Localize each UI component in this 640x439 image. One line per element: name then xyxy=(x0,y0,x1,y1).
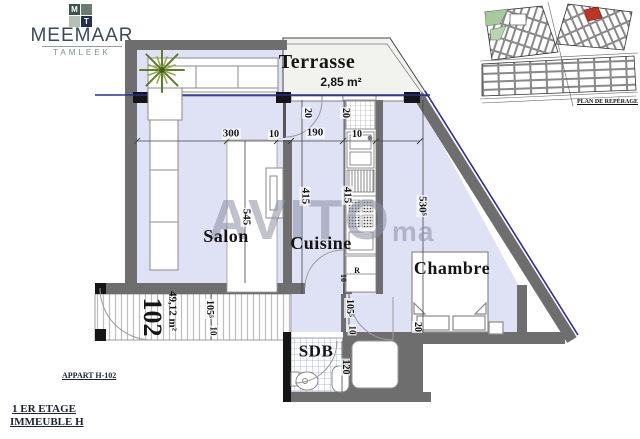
room-label-cuisine: Cuisine xyxy=(290,234,352,252)
floorplan-page: M T MEEMAAR TAMLEEK xyxy=(0,0,640,439)
room-label-terrasse: Terrasse xyxy=(279,52,356,72)
building-title: IMMEUBLE H xyxy=(10,416,84,428)
unit-area-label: 49,12 m² xyxy=(167,291,178,331)
room-label-salon: Salon xyxy=(203,227,249,245)
dim-120: 120 xyxy=(340,359,350,376)
dim-20-c: 20 xyxy=(412,321,422,333)
unit-number-label: 102 xyxy=(139,298,165,337)
nightstand xyxy=(489,322,503,334)
fridge-label: R xyxy=(354,267,360,275)
dim-20-b: 20 xyxy=(340,107,350,119)
dim-415-b: 415 xyxy=(342,186,353,205)
dim-415-a: 415 xyxy=(300,187,311,206)
salon-cabinet xyxy=(266,168,283,218)
dim-190: 190 xyxy=(306,128,325,139)
dim-10-b: 10 xyxy=(351,130,363,140)
room-label-sdb: SDB xyxy=(299,343,334,360)
dim-20-a: 20 xyxy=(302,107,312,119)
dim-105-5-a: 105⁵ xyxy=(204,299,214,319)
dim-105-5-b: 105⁵ xyxy=(344,298,354,318)
dim-10-e: 10 xyxy=(339,274,347,282)
floor-title: 1 ER ETAGE xyxy=(12,403,76,415)
room-label-chambre: Chambre xyxy=(414,259,490,277)
common-corridor-floor xyxy=(95,294,291,340)
dim-530-5: 530⁵ xyxy=(417,195,428,217)
terrasse-area-label: 2,85 m² xyxy=(320,76,361,88)
dim-300: 300 xyxy=(222,129,241,140)
dim-10-a: 10 xyxy=(268,130,280,140)
dim-10-c: 10 xyxy=(209,326,218,337)
plant xyxy=(140,48,184,92)
dim-545: 545 xyxy=(241,208,252,227)
dim-10-d: 10 xyxy=(348,325,357,336)
apartment-title: APPART H-102 xyxy=(62,371,116,380)
shower-tray xyxy=(352,341,398,388)
